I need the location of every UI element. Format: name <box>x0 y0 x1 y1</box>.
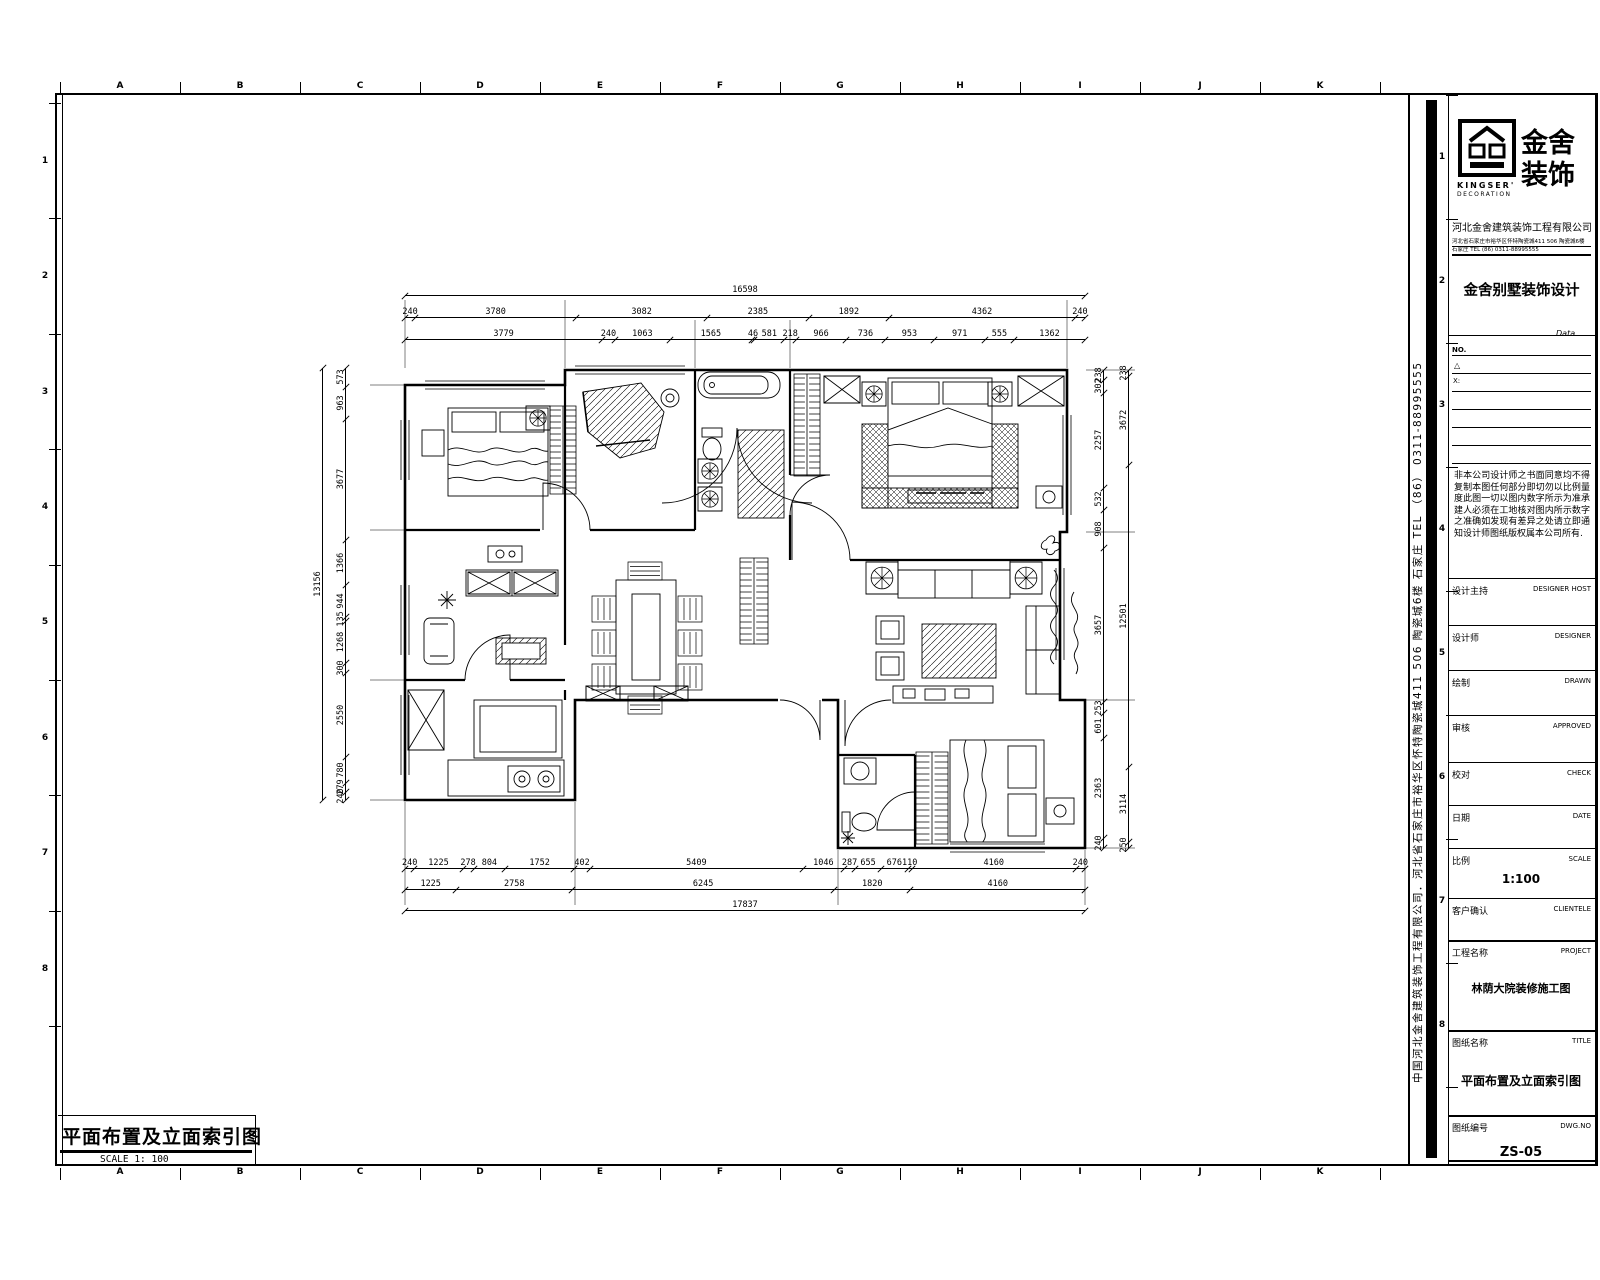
dim-label: 1366 <box>336 553 346 573</box>
dim-bottom-row2: 12252758624518204160 <box>405 889 1085 890</box>
dim-label: 3114 <box>1119 794 1129 814</box>
field-label-cn: 绘制 <box>1452 676 1470 689</box>
revision-line <box>1452 355 1591 356</box>
revision-line <box>1452 445 1591 446</box>
dim-label: 250 <box>1119 837 1129 852</box>
grid-tick <box>420 82 421 94</box>
field-label-cn: 审核 <box>1452 721 1470 734</box>
ceiling-light-bath-se <box>841 831 855 845</box>
drawing-sheet: { "sheet": { "grid_letters": ["A","B","C… <box>0 0 1600 1280</box>
dim-label: 4160 <box>987 879 1007 889</box>
grid-tick <box>540 82 541 94</box>
dim-label: 300 <box>336 660 346 675</box>
doors <box>465 428 915 830</box>
field-rule <box>1448 1030 1595 1032</box>
rev-no-label: NO. <box>1452 346 1466 354</box>
dim-top-total: 16598 <box>405 295 1085 296</box>
grid-tick <box>180 1168 181 1180</box>
dim-label: 218 <box>782 329 797 339</box>
armchair <box>424 618 454 664</box>
dim-label: 2758 <box>504 879 524 889</box>
grid-tick <box>1140 1168 1141 1180</box>
dim-bottom-total: 17837 <box>405 910 1085 911</box>
field-label-cn: 设计师 <box>1452 631 1479 644</box>
field-rule <box>1448 578 1595 579</box>
bath-se <box>842 758 876 832</box>
dim-label: 1046 <box>813 858 833 868</box>
grid-tick <box>1446 467 1458 468</box>
side-table-2 <box>876 652 904 680</box>
grid-tick <box>1380 82 1381 94</box>
field-value: 1:100 <box>1502 872 1540 886</box>
dim-label: 12501 <box>1119 603 1129 629</box>
dim-label: 1362 <box>1039 329 1059 339</box>
grid-tick <box>300 82 301 94</box>
grid-tick <box>49 1026 61 1027</box>
logo-en-2: DECORATION <box>1457 191 1512 198</box>
bed-nw <box>422 408 548 496</box>
field-label-en: DESIGNER HOST <box>1533 585 1591 593</box>
field-label-cn: 图纸名称 <box>1452 1036 1488 1049</box>
field-label-en: DRAWN <box>1564 677 1591 685</box>
dim-label: 2550 <box>336 705 346 725</box>
grand-piano <box>583 383 679 458</box>
field-rule <box>1448 848 1595 849</box>
dim-label: 253 <box>1094 700 1104 715</box>
company-contact-small: 石家庄 TEL (86) 0311-88995555 <box>1452 247 1591 256</box>
dim-label: 3677 <box>336 469 346 489</box>
nightstand-master <box>1036 486 1062 508</box>
dim-label: 3672 <box>1119 410 1129 430</box>
title-block: KINGSER' DECORATION 金舍 装饰 河北金舍建筑装饰工程有限公司… <box>1408 93 1598 1165</box>
grid-tick <box>540 1168 541 1180</box>
field-rule <box>1448 715 1595 716</box>
study-cabinet <box>466 570 558 596</box>
dim-label: 908 <box>1094 522 1104 537</box>
grid-tick <box>660 82 661 94</box>
coffee-table <box>922 624 996 678</box>
grid-tick <box>1020 1168 1021 1180</box>
bed-master <box>862 378 1018 508</box>
dim-label: 963 <box>336 395 346 410</box>
grid-tick <box>49 449 61 450</box>
dim-label: 581 <box>762 329 777 339</box>
field-rule <box>1448 670 1595 671</box>
section-title: 金舍别墅装饰设计 <box>1448 279 1595 300</box>
revision-line <box>1452 409 1591 410</box>
dim-label: 1268 <box>336 632 346 652</box>
dim-label: 1063 <box>632 329 652 339</box>
dim-label: 5409 <box>686 858 706 868</box>
dim-label: 302 <box>1094 379 1104 394</box>
dim-right-col2: 2383672125013114250 <box>1128 370 1129 848</box>
shower <box>738 430 784 518</box>
grid-tick <box>780 82 781 94</box>
dim-label: 46 <box>748 329 758 339</box>
field-label-en: DESIGNER <box>1555 632 1591 640</box>
grid-tick <box>300 1168 301 1180</box>
dim-label: 804 <box>482 858 497 868</box>
grid-tick <box>49 218 61 219</box>
field-rule <box>1448 898 1595 899</box>
dim-left-col: 5739633677136694413512683002550780279240 <box>345 368 346 800</box>
field-label-en: APPROVED <box>1553 722 1591 730</box>
field-label-en: DATE <box>1573 812 1591 820</box>
grid-tick <box>420 1168 421 1180</box>
ceiling-light-study <box>438 591 456 609</box>
dim-label: 1820 <box>862 879 882 889</box>
field-rule <box>1448 1115 1595 1117</box>
drawing-title-underline <box>60 1150 252 1153</box>
dim-label: 2257 <box>1094 430 1104 450</box>
dim-label: 601 <box>1094 718 1104 733</box>
dim-bottom-row1: 2401225278804175240254091046287655676110… <box>405 868 1085 869</box>
dim-label: 402 <box>574 858 589 868</box>
rev-triangle-label: △ <box>1454 361 1460 370</box>
field-label-en: CLIENTELE <box>1553 905 1591 913</box>
dim-label: 966 <box>813 329 828 339</box>
field-label-en: DWG.NO <box>1560 1122 1591 1130</box>
bed-se <box>950 740 1044 842</box>
dim-label: 240 <box>1072 307 1087 317</box>
rev-x-label: X: <box>1453 377 1460 385</box>
dim-label: 17837 <box>732 900 758 910</box>
dim-label: 1225 <box>420 879 440 889</box>
kitchen-island <box>474 700 562 758</box>
dim-label: 110 <box>902 858 917 868</box>
grid-tick <box>1020 82 1021 94</box>
dim-label: 3082 <box>631 307 651 317</box>
sofa-main <box>898 560 1010 598</box>
field-value: 平面布置及立面索引图 <box>1461 1072 1581 1089</box>
dim-label: 135 <box>336 611 346 626</box>
dim-label: 780 <box>336 762 346 777</box>
field-label-cn: 图纸编号 <box>1452 1121 1488 1134</box>
company-name: 河北金舍建筑装饰工程有限公司 <box>1452 219 1591 234</box>
logo-cn-2: 装饰 <box>1521 153 1575 192</box>
dim-label: 736 <box>858 329 873 339</box>
dim-label: 573 <box>336 370 346 385</box>
field-rule <box>1448 762 1595 763</box>
dim-label: 240 <box>1094 835 1104 850</box>
field-value: 林荫大院装修施工图 <box>1472 980 1571 996</box>
grid-tick <box>1380 1168 1381 1180</box>
grid-tick <box>1260 82 1261 94</box>
dim-label: 944 <box>336 593 346 608</box>
dim-label: 555 <box>992 329 1007 339</box>
dim-label: 240 <box>1073 858 1088 868</box>
grid-tick <box>900 82 901 94</box>
art-frame <box>496 638 546 664</box>
side-table-1 <box>876 616 904 644</box>
dim-label: 240 <box>402 858 417 868</box>
revision-line <box>1452 391 1591 392</box>
dim-label: 287 <box>842 858 857 868</box>
grid-tick <box>1446 1087 1458 1088</box>
field-label-en: TITLE <box>1572 1037 1591 1045</box>
dim-left-total: 13156 <box>322 368 323 800</box>
dim-label: 13156 <box>313 571 323 597</box>
dim-label: 3779 <box>493 329 513 339</box>
grid-tick <box>60 82 61 94</box>
grid-tick <box>1446 963 1458 964</box>
field-label-en: SCALE <box>1569 855 1591 863</box>
grid-tick <box>660 1168 661 1180</box>
nightstand-se <box>1046 798 1074 824</box>
grid-tick <box>1446 839 1458 840</box>
dim-label: 1225 <box>428 858 448 868</box>
field-label-cn: 校对 <box>1452 768 1470 781</box>
field-rule <box>1448 805 1595 806</box>
field-value: ZS-05 <box>1500 1145 1542 1160</box>
dim-label: 2363 <box>1094 778 1104 798</box>
dim-label: 278 <box>460 858 475 868</box>
revision-line <box>1452 463 1591 464</box>
dim-label: 971 <box>952 329 967 339</box>
dim-label: 1892 <box>839 307 859 317</box>
grid-tick <box>60 1168 61 1180</box>
grid-tick <box>49 795 61 796</box>
floor-plan <box>0 0 1600 1280</box>
field-label-en: PROJECT <box>1561 947 1591 955</box>
bathtub <box>698 372 780 398</box>
grid-tick <box>1446 95 1458 96</box>
grid-tick <box>1446 715 1458 716</box>
dim-label: 238 <box>1119 365 1129 380</box>
grid-tick <box>1260 1168 1261 1180</box>
dim-label: 240 <box>402 307 417 317</box>
sofa-love <box>1026 606 1060 694</box>
field-label-cn: 工程名称 <box>1452 946 1488 959</box>
field-label-cn: 比例 <box>1452 854 1470 867</box>
dim-label: 532 <box>1094 491 1104 506</box>
data-label: Data <box>1556 329 1575 338</box>
dim-label: 3780 <box>485 307 505 317</box>
dim-label: 655 <box>860 858 875 868</box>
dim-label: 1752 <box>529 858 549 868</box>
dim-top-row2: 3779240106315654658121896673695397155513… <box>405 339 1085 340</box>
toilet-top <box>702 428 722 460</box>
dim-label: 240 <box>601 329 616 339</box>
dim-top-row1: 24037803082238518924362240 <box>405 317 1085 318</box>
kitchen-counter <box>448 760 564 796</box>
drawing-title: 平面布置及立面索引图 <box>62 1122 262 1149</box>
field-rule-end <box>1448 1160 1595 1162</box>
grid-tick <box>900 1168 901 1180</box>
kingser-logo-icon <box>1458 119 1516 179</box>
dim-label: 953 <box>902 329 917 339</box>
field-rule <box>1448 625 1595 626</box>
logo-en-1: KINGSER' <box>1457 181 1515 190</box>
field-rule <box>1448 940 1595 942</box>
titlebox-top-line <box>58 1115 255 1116</box>
grid-tick <box>1446 591 1458 592</box>
curtain-scroll <box>1071 592 1078 674</box>
grid-tick <box>49 565 61 566</box>
grid-tick <box>49 680 61 681</box>
furniture <box>408 372 1078 845</box>
grid-tick <box>1446 219 1458 220</box>
revision-line <box>1452 427 1591 428</box>
dim-label: 4160 <box>983 858 1003 868</box>
grid-tick <box>1140 82 1141 94</box>
dim-label: 676 <box>887 858 902 868</box>
tea-table <box>488 546 522 562</box>
grid-tick <box>49 911 61 912</box>
extension-lines <box>370 300 1135 905</box>
revision-line <box>1452 373 1591 374</box>
grid-tick <box>180 82 181 94</box>
desk-se <box>893 686 993 703</box>
dim-label: 2385 <box>748 307 768 317</box>
dim-right-col1: 238302225753290836572536012363240 <box>1103 370 1104 848</box>
field-label-en: CHECK <box>1567 769 1591 777</box>
grid-tick <box>1446 343 1458 344</box>
dim-label: 6245 <box>693 879 713 889</box>
grid-tick <box>49 103 61 104</box>
grid-tick <box>780 1168 781 1180</box>
dim-label: 1565 <box>701 329 721 339</box>
dim-label: 240 <box>336 788 346 803</box>
plant-scroll <box>1041 536 1060 555</box>
dining-table <box>616 580 676 694</box>
field-label-cn: 客户确认 <box>1452 904 1488 917</box>
drawing-scale: SCALE 1: 100 <box>100 1154 169 1165</box>
dim-label: 3657 <box>1094 615 1104 635</box>
dim-label: 4362 <box>972 307 992 317</box>
side-table-2-top <box>881 657 899 675</box>
side-table-1-top <box>881 621 899 639</box>
disclaimer-note: 非本公司设计师之书面同意均不得复制本图任何部分即切勿以比例量度此图一切以图内数字… <box>1454 471 1590 541</box>
company-address-small: 河北省石家庄市裕华区怀特陶瓷城411 506 陶瓷城6楼 <box>1452 239 1591 247</box>
dim-label: 16598 <box>732 285 758 295</box>
door-gap-bedroom-se <box>843 695 891 705</box>
field-label-cn: 日期 <box>1452 811 1470 824</box>
grid-tick <box>49 334 61 335</box>
